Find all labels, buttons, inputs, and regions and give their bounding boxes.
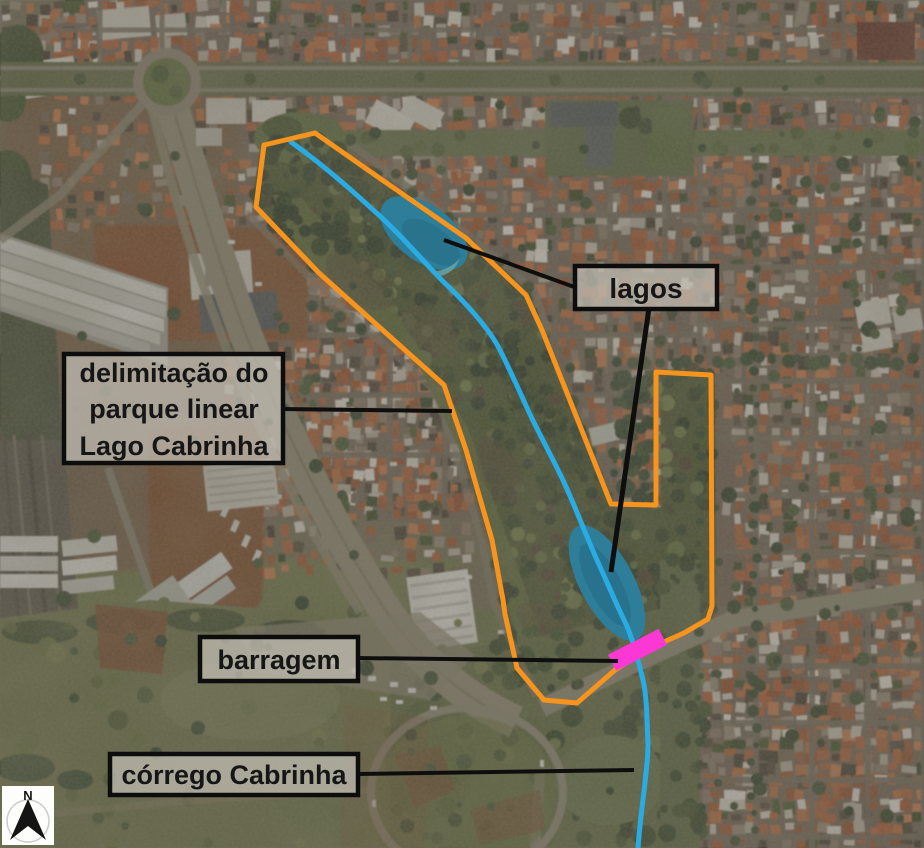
svg-text:delimitação do: delimitação do	[79, 358, 268, 388]
svg-text:lagos: lagos	[609, 273, 682, 304]
svg-text:córrego Cabrinha: córrego Cabrinha	[121, 760, 347, 790]
svg-text:Lago Cabrinha: Lago Cabrinha	[79, 431, 269, 461]
svg-text:barragem: barragem	[217, 645, 340, 675]
svg-text:N: N	[23, 788, 32, 803]
svg-text:parque linear: parque linear	[89, 394, 259, 424]
